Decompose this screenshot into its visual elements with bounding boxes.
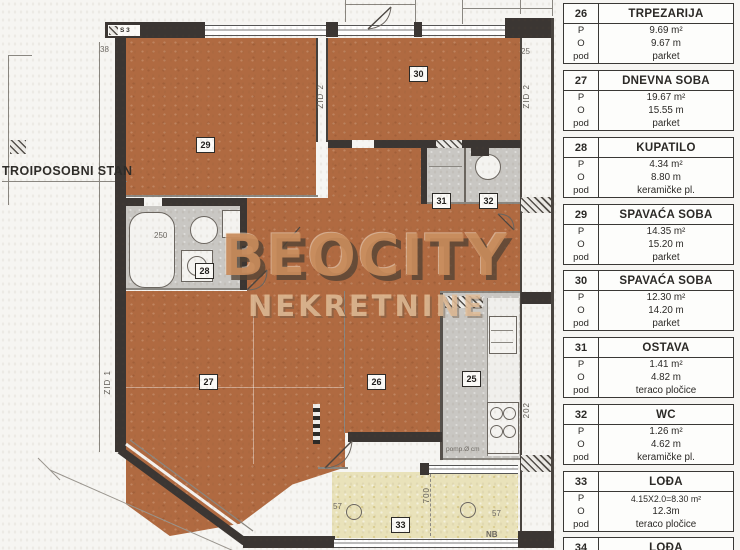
area-value: 19.67 m² <box>599 91 733 104</box>
burner <box>490 407 503 420</box>
room-marker-26: 26 <box>367 374 386 390</box>
room-legend: 26 TRPEZARIJA P9.69 m² O9.67 m podparket… <box>563 0 740 550</box>
perimeter-label: O <box>564 438 599 451</box>
legend-room-name: KUPATILO <box>599 138 733 157</box>
perimeter-value: 15.20 m <box>599 238 733 251</box>
perimeter-value: 12.3m <box>599 505 733 518</box>
wall-segment <box>348 432 442 442</box>
perimeter-value: 14.20 m <box>599 304 733 317</box>
wall-hatch <box>521 455 551 472</box>
legend-room-number: 28 <box>564 138 599 157</box>
dimension-line <box>345 4 415 5</box>
dimension-label: 250 <box>154 232 167 240</box>
area-value: 14.35 m² <box>599 225 733 238</box>
floor-label: pod <box>564 50 599 63</box>
wall-line <box>318 467 348 469</box>
watermark-subtitle: NEKRETNINE <box>248 287 482 327</box>
wall-label: ZID 1 <box>104 370 112 395</box>
wall-segment <box>505 18 554 38</box>
dimension-label: 700 <box>423 487 431 503</box>
legend-header: 34 LOĐA <box>564 538 733 550</box>
watermark-brand: BEOCITY <box>198 220 532 294</box>
room-marker-25: 25 <box>462 371 481 387</box>
dimension-line <box>552 0 553 16</box>
area-label: P <box>564 425 599 438</box>
wc-toilet <box>475 154 501 180</box>
floor-label: pod <box>564 317 599 330</box>
loggia-dashed-line <box>430 474 432 536</box>
legend-block-31: 31 OSTAVA P1.41 m² O4.82 m podteraco plo… <box>563 337 734 398</box>
loggia-marker-circle <box>460 502 476 518</box>
floor-value: parket <box>599 317 733 330</box>
perimeter-label: O <box>564 304 599 317</box>
pump-note: pomp.Ø cm <box>446 447 480 454</box>
floor-label: pod <box>564 117 599 130</box>
legend-block-28: 28 KUPATILO P4.34 m² O8.80 m podkeramičk… <box>563 137 734 198</box>
legend-room-name: SPAVAĆA SOBA <box>599 271 733 290</box>
dimension-label: 25 <box>521 48 530 56</box>
shelf-line <box>429 166 462 167</box>
legend-header: 26 TRPEZARIJA <box>564 4 733 24</box>
burner <box>490 425 503 438</box>
legend-room-number: 26 <box>564 4 599 23</box>
area-label: P <box>564 492 599 505</box>
area-value: 1.41 m² <box>599 358 733 371</box>
legend-room-number: 34 <box>564 538 599 550</box>
wall-hatch <box>521 197 551 213</box>
kitchen-sink-unit <box>489 316 517 354</box>
floor-label: pod <box>564 251 599 264</box>
wc-cistern <box>471 148 489 156</box>
area-value: 4.34 m² <box>599 158 733 171</box>
legend-header: 32 WC <box>564 405 733 425</box>
sink-line <box>491 330 513 331</box>
dimension-label: 38 <box>100 46 109 54</box>
legend-room-name: LOĐA <box>599 472 733 491</box>
burner <box>503 407 516 420</box>
wall-mullion <box>326 22 338 37</box>
area-label: P <box>564 291 599 304</box>
room-loggia-33 <box>332 472 518 538</box>
hatch-square <box>109 26 118 35</box>
room-marker-32: 32 <box>479 193 498 209</box>
legend-block-30: 30 SPAVAĆA SOBA P12.30 m² O14.20 m podpa… <box>563 270 734 331</box>
perimeter-value: 4.82 m <box>599 371 733 384</box>
legend-room-number: 29 <box>564 205 599 224</box>
legend-block-34: 34 LOĐA <box>563 537 734 550</box>
note-label: NB <box>486 531 498 539</box>
legend-room-number: 32 <box>564 405 599 424</box>
window-band-top <box>205 25 505 36</box>
wall-segment <box>421 146 427 204</box>
dimension-line <box>462 8 552 9</box>
wall-line <box>126 195 318 197</box>
legend-room-number: 33 <box>564 472 599 491</box>
floor-value: keramičke pl. <box>599 451 733 464</box>
legend-room-name: DNEVNA SOBA <box>599 71 733 90</box>
floor-value: teraco pločice <box>599 384 733 397</box>
area-label: P <box>564 225 599 238</box>
window-band <box>428 465 518 474</box>
legend-room-name: SPAVAĆA SOBA <box>599 205 733 224</box>
legend-room-number: 27 <box>564 71 599 90</box>
floor-label: pod <box>564 518 599 531</box>
legend-room-number: 30 <box>564 271 599 290</box>
room-marker-33: 33 <box>391 517 410 533</box>
section-label: S 3 <box>120 27 130 34</box>
perimeter-label: O <box>564 104 599 117</box>
section-label-box: S 3 <box>108 25 140 36</box>
area-value: 4.15X2.0=8.30 m² <box>599 492 733 505</box>
perimeter-value: 8.80 m <box>599 171 733 184</box>
wall-left <box>115 38 126 452</box>
wall-mullion <box>414 22 422 37</box>
perimeter-label: O <box>564 171 599 184</box>
perimeter-value: 9.67 m <box>599 37 733 50</box>
legend-room-name: OSTAVA <box>599 338 733 357</box>
legend-block-26: 26 TRPEZARIJA P9.69 m² O9.67 m podparket <box>563 3 734 64</box>
door-opening <box>144 198 162 206</box>
loggia-marker-circle <box>346 504 362 520</box>
floor-label: pod <box>564 384 599 397</box>
dimension-line <box>520 0 521 14</box>
floor-label: pod <box>564 451 599 464</box>
legend-header: 33 LOĐA <box>564 472 733 492</box>
area-value: 1.26 m² <box>599 425 733 438</box>
dimension-label: 57 <box>492 510 501 518</box>
legend-block-29: 29 SPAVAĆA SOBA P14.35 m² O15.20 m podpa… <box>563 204 734 265</box>
legend-block-32: 32 WC P1.26 m² O4.62 m podkeramičke pl. <box>563 404 734 465</box>
legend-room-name: WC <box>599 405 733 424</box>
area-label: P <box>564 24 599 37</box>
legend-header: 28 KUPATILO <box>564 138 733 158</box>
perimeter-label: O <box>564 371 599 384</box>
wall-hatch <box>10 140 26 154</box>
wall-line <box>440 458 520 460</box>
perimeter-label: O <box>564 238 599 251</box>
floor-value: parket <box>599 251 733 264</box>
area-label: P <box>564 91 599 104</box>
area-label: P <box>564 358 599 371</box>
site-line <box>8 55 32 56</box>
room-hall <box>328 146 421 202</box>
area-label: P <box>564 158 599 171</box>
site-line <box>8 55 9 205</box>
door-opening <box>352 140 374 148</box>
legend-room-number: 31 <box>564 338 599 357</box>
floor-value: parket <box>599 117 733 130</box>
ceiling-line <box>126 387 345 388</box>
perimeter-label: O <box>564 37 599 50</box>
perimeter-label: O <box>564 505 599 518</box>
wall-label: ZID 2 <box>317 84 325 109</box>
area-value: 12.30 m² <box>599 291 733 304</box>
wall-line <box>551 18 554 548</box>
dimension-label: 57 <box>333 503 342 511</box>
burner <box>503 425 516 438</box>
bathtub <box>129 212 175 288</box>
wall-post <box>420 463 429 475</box>
floor-value: keramičke pl. <box>599 184 733 197</box>
legend-header: 29 SPAVAĆA SOBA <box>564 205 733 225</box>
legend-room-name: LOĐA <box>599 538 733 550</box>
legend-block-27: 27 DNEVNA SOBA P19.67 m² O15.55 m podpar… <box>563 70 734 131</box>
dimension-line <box>415 0 416 24</box>
floor-value: teraco pločice <box>599 518 733 531</box>
floorplan-page: S 3 <box>0 0 740 550</box>
legend-header: 31 OSTAVA <box>564 338 733 358</box>
column-stub <box>313 404 320 444</box>
legend-header: 30 SPAVAĆA SOBA <box>564 271 733 291</box>
perimeter-value: 15.55 m <box>599 104 733 117</box>
floor-value: parket <box>599 50 733 63</box>
room-bedroom-29 <box>126 38 316 195</box>
room-marker-27: 27 <box>199 374 218 390</box>
window-band-loggia <box>334 539 518 548</box>
legend-header: 27 DNEVNA SOBA <box>564 71 733 91</box>
wall-hatch <box>436 140 462 148</box>
wall-segment <box>518 531 554 548</box>
wall-bottom <box>243 536 335 548</box>
legend-room-name: TRPEZARIJA <box>599 4 733 23</box>
room-marker-29: 29 <box>196 137 215 153</box>
dimension-line <box>462 0 463 24</box>
room-bedroom-30 <box>328 38 520 140</box>
dimension-label: 202 <box>523 402 531 418</box>
perimeter-value: 4.62 m <box>599 438 733 451</box>
apartment-type-label: TROIPOSOBNI STAN <box>2 164 132 178</box>
legend-block-33: 33 LOĐA P4.15X2.0=8.30 m² O12.3m podtera… <box>563 471 734 532</box>
dimension-line <box>99 42 100 452</box>
area-value: 9.69 m² <box>599 24 733 37</box>
sink-line <box>491 342 513 343</box>
label-pointer-line <box>2 181 127 182</box>
room-marker-31: 31 <box>432 193 451 209</box>
floor-label: pod <box>564 184 599 197</box>
wall-line <box>464 148 466 202</box>
room-marker-30: 30 <box>409 66 428 82</box>
wall-label: ZID 2 <box>523 84 531 109</box>
